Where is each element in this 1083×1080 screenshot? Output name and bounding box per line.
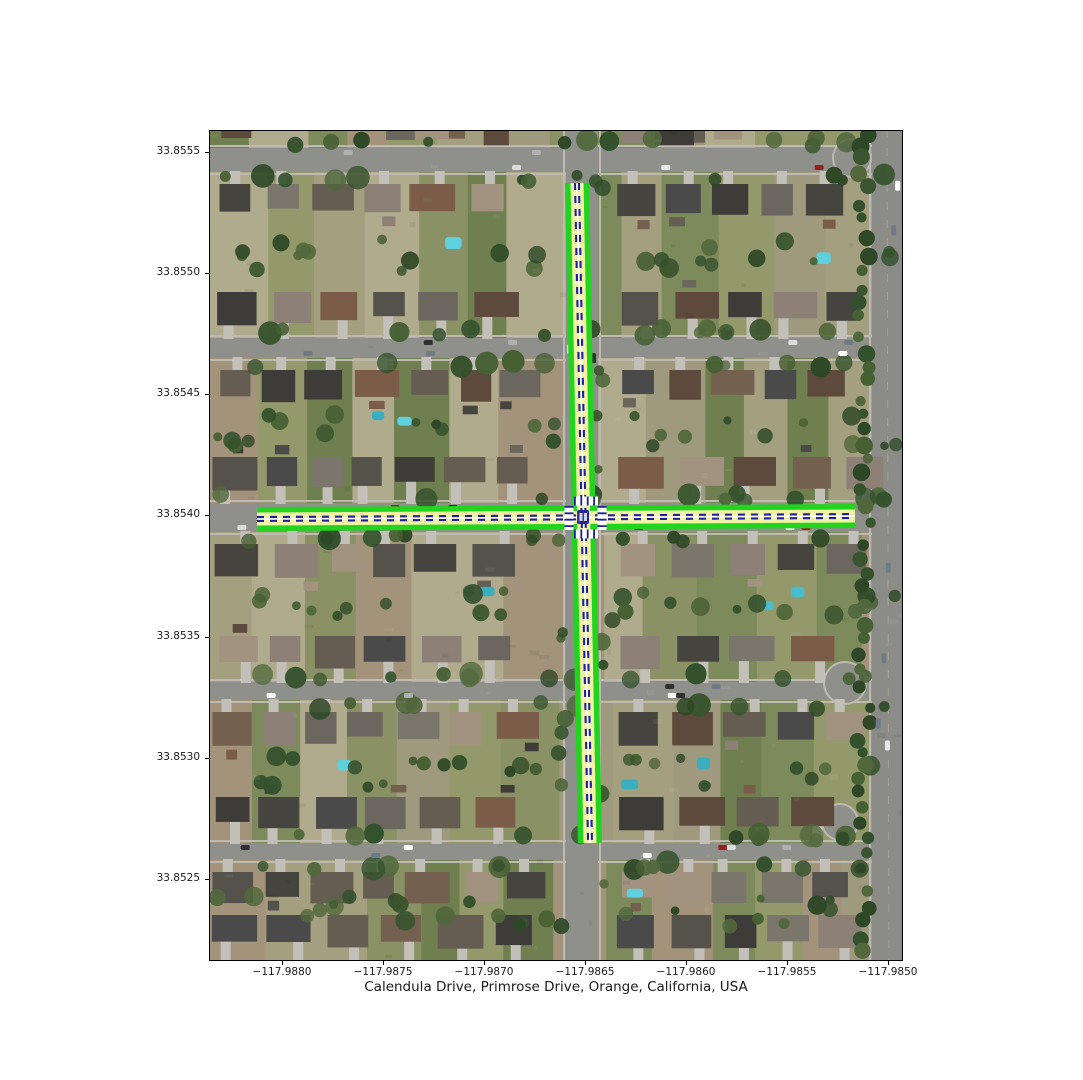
x-tick-label: −117.9880 [253,966,312,978]
y-tick-mark [205,394,209,395]
y-tick-mark [205,879,209,880]
x-tick-mark [282,961,283,965]
satellite-image [209,130,903,961]
x-tick-mark [686,961,687,965]
y-tick-label: 33.8555 [120,145,200,157]
y-tick-label: 33.8530 [120,751,200,763]
x-tick-mark [888,961,889,965]
y-tick-mark [205,758,209,759]
y-tick-mark [205,273,209,274]
figure-title: Calendula Drive, Primrose Drive, Orange,… [209,979,903,995]
x-tick-label: −117.9860 [657,966,716,978]
junction-marker [577,510,589,524]
x-tick-label: −117.9875 [354,966,413,978]
x-tick-label: −117.9855 [758,966,817,978]
x-tick-label: −117.9870 [455,966,514,978]
figure: −117.9880−117.9875−117.9870−117.9865−117… [0,0,1083,1080]
y-tick-label: 33.8525 [120,872,200,884]
x-tick-mark [585,961,586,965]
x-tick-label: −117.9850 [859,966,918,978]
y-tick-label: 33.8535 [120,630,200,642]
map-layers [209,130,903,961]
map-plot [209,130,903,961]
y-tick-label: 33.8550 [120,266,200,278]
x-tick-mark [787,961,788,965]
x-tick-mark [383,961,384,965]
y-tick-label: 33.8540 [120,508,200,520]
y-tick-mark [205,637,209,638]
x-tick-label: −117.9865 [556,966,615,978]
y-tick-label: 33.8545 [120,387,200,399]
y-tick-mark [205,515,209,516]
y-tick-mark [205,152,209,153]
x-tick-mark [484,961,485,965]
